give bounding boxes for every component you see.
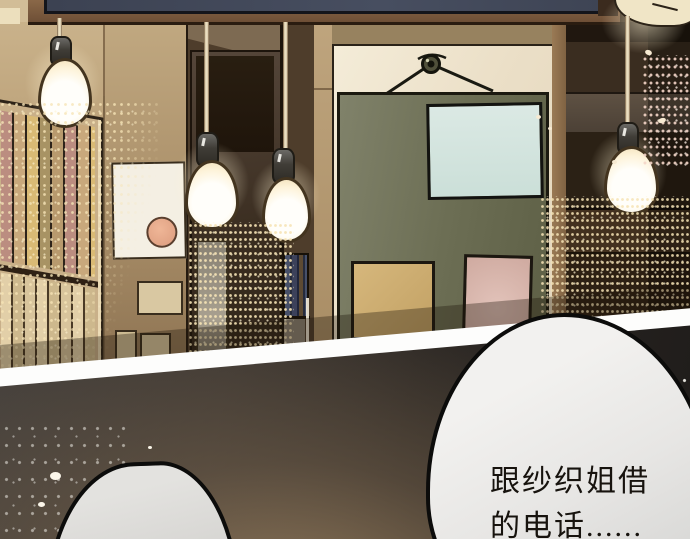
sparkle-dot bbox=[536, 115, 541, 119]
sparkle-field-right-top bbox=[642, 55, 690, 167]
sparkle-dot bbox=[50, 472, 61, 480]
bulb-cord bbox=[283, 22, 288, 150]
sparkle-dot bbox=[612, 160, 617, 164]
speech-text-line-1: 跟纱织姐借 bbox=[490, 459, 650, 504]
sparkle-dot bbox=[548, 127, 552, 130]
sparkle-dot bbox=[38, 502, 45, 507]
speech-text: 跟纱织姐借 的电话...... bbox=[490, 459, 650, 539]
ceiling-sign bbox=[44, 0, 608, 14]
sparkle-dot bbox=[148, 446, 152, 449]
bulb-cord bbox=[625, 16, 630, 126]
topleft-light-patch bbox=[0, 8, 20, 24]
teal-paper bbox=[426, 102, 544, 200]
speech-text-line-2: 的电话...... bbox=[490, 504, 650, 539]
bulb-cord bbox=[204, 22, 209, 136]
webtoon-page: 跟纱织姐借 的电话...... bbox=[0, 0, 690, 539]
